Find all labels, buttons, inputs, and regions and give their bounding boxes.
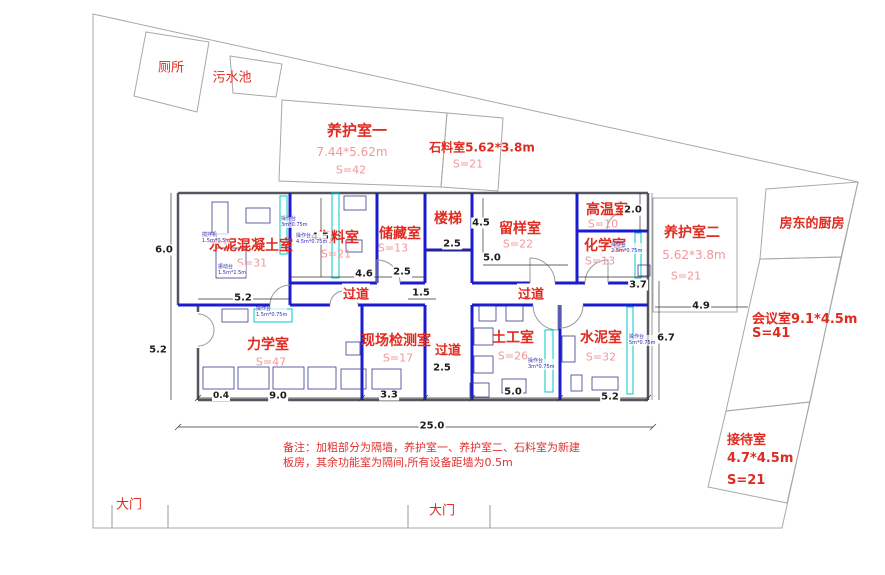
floorplan-drawing — [0, 0, 885, 575]
gate-ticks — [112, 505, 490, 528]
sewage-outline — [230, 56, 282, 97]
curing1-outline — [279, 100, 447, 187]
toilet-outline — [134, 32, 209, 112]
curing2-outline — [653, 198, 737, 312]
meeting-outline — [726, 257, 841, 411]
plan-note: 备注：加粗部分为隔墙，养护室一、养护室二、石料室为新建板房，其余功能室为隔间,所… — [283, 441, 583, 471]
reception-outline — [708, 402, 810, 503]
partition-walls — [178, 193, 648, 400]
counters — [254, 193, 641, 394]
site-plan: 厕所 污水池 养护室一 7.44*5.62m S=42 石料室5.62*3.8m… — [0, 0, 885, 575]
stone-outline — [441, 113, 503, 191]
kitchen-outline — [760, 182, 858, 259]
